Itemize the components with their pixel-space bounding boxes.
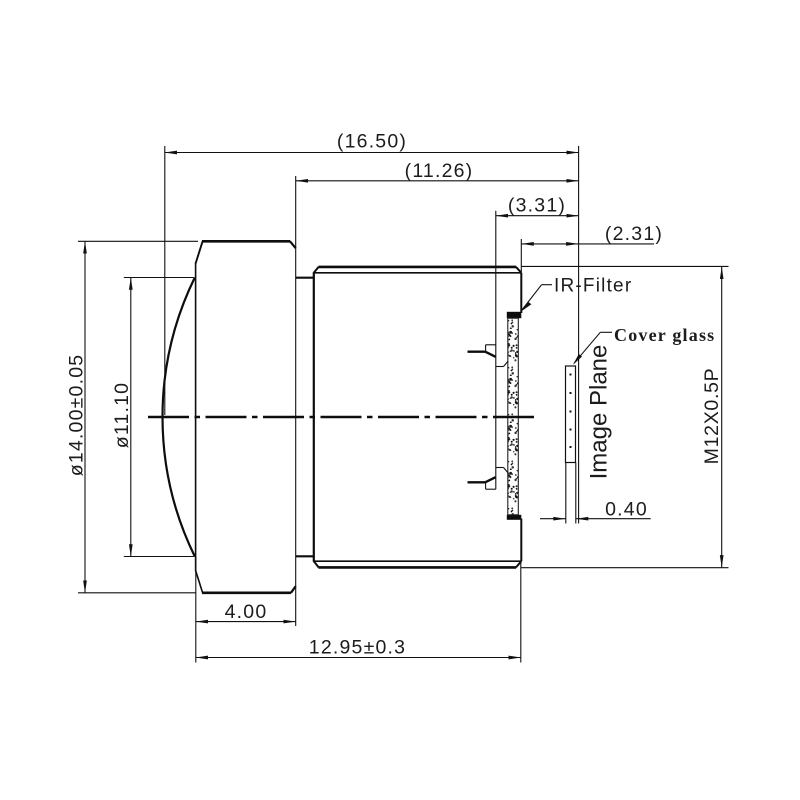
svg-text:(11.26): (11.26) bbox=[405, 160, 474, 182]
svg-text:IR-Filter: IR-Filter bbox=[554, 276, 632, 297]
svg-text:M12X0.5P: M12X0.5P bbox=[701, 368, 723, 465]
svg-text:Image Plane: Image Plane bbox=[586, 345, 613, 480]
svg-text:(2.31): (2.31) bbox=[605, 223, 663, 245]
svg-text:4.00: 4.00 bbox=[225, 601, 268, 623]
svg-text:Cover glass: Cover glass bbox=[614, 325, 715, 345]
svg-text:ø14.00±0.05: ø14.00±0.05 bbox=[66, 354, 88, 477]
svg-text:12.95±0.3: 12.95±0.3 bbox=[309, 637, 406, 659]
svg-text:ø11.10: ø11.10 bbox=[111, 382, 133, 448]
svg-text:(16.50): (16.50) bbox=[337, 131, 407, 153]
svg-text:(3.31): (3.31) bbox=[508, 195, 566, 217]
svg-text:0.40: 0.40 bbox=[605, 499, 648, 521]
